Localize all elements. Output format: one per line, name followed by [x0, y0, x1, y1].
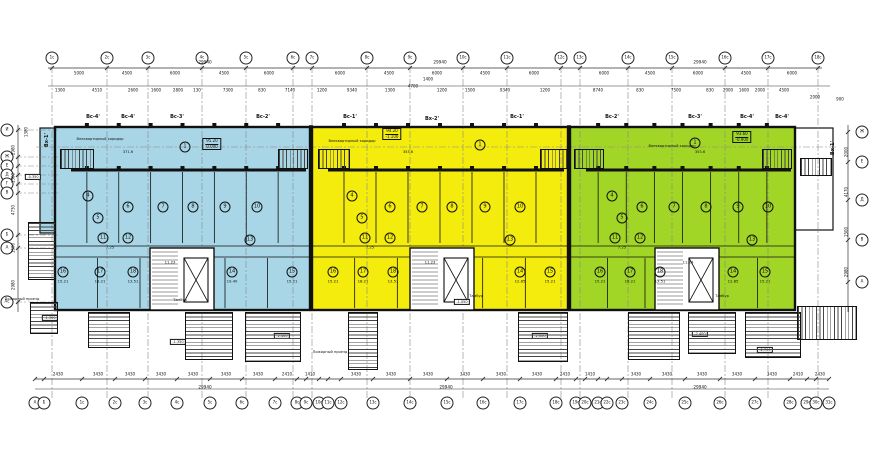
room-area: 15.21: [760, 279, 771, 284]
dimension-text-vertical: 2980: [11, 280, 16, 290]
dimension-text: 6000: [599, 71, 609, 76]
grid-bubble-bottom: 4с: [171, 397, 184, 410]
room-number: 9: [480, 202, 491, 213]
stairs-hatch: [518, 312, 568, 362]
dimension-text: 3430: [496, 372, 506, 377]
dimension-text: 4700: [408, 84, 418, 89]
room-number: 11: [98, 233, 109, 244]
dimension-text: 6000: [264, 71, 274, 76]
room-number: 1: [475, 140, 486, 151]
dimension-text: 2000: [810, 95, 820, 100]
dimension-text: 6000: [335, 71, 345, 76]
text-label: Внеквартирный коридор: [328, 139, 375, 143]
grid-bubble-top: 5с: [240, 52, 253, 65]
grid-bubble-right: Е: [856, 156, 869, 169]
dimension-text: 830: [258, 88, 266, 93]
grid-bubble-bottom: 14с: [404, 397, 417, 410]
grid-bubble-top: 3с: [142, 52, 155, 65]
elevation-box: 94.20-1.100: [382, 128, 401, 140]
grid-bubble-bottom: 16с: [477, 397, 490, 410]
grid-bubble-bottom: 13с: [367, 397, 380, 410]
level-mark: -1.050: [454, 299, 470, 305]
room-number: 14: [515, 267, 526, 278]
level-mark: -0.350: [25, 174, 41, 180]
room-number: 10: [515, 202, 526, 213]
elevation-box: 95.200.000: [202, 138, 221, 150]
room-number: 15: [545, 267, 556, 278]
entry-mark: Вс-3': [688, 114, 702, 120]
room-number: 10: [252, 202, 263, 213]
dimension-text-vertical: 1380: [24, 127, 29, 137]
text-label: Тамбур: [173, 298, 187, 302]
entry-mark: Вх-1': [830, 141, 836, 155]
entry-mark: Вс-3': [170, 114, 184, 120]
grid-bubble-bottom: 27с: [749, 397, 762, 410]
dimension-total: 29940: [439, 385, 452, 390]
dimension-text: 7500: [671, 88, 681, 93]
room-area: 15.21: [595, 279, 606, 284]
dimension-text: 7300: [223, 88, 233, 93]
grid-bubble-top: 8с: [361, 52, 374, 65]
elevation-bottom: 0.000: [205, 145, 218, 150]
level-mark: -1.350: [170, 339, 186, 345]
text-label: Пожарный проезд: [5, 297, 40, 301]
dimension-text: 6000: [529, 71, 539, 76]
room-area: 13.51: [128, 279, 139, 284]
dimension-text: 3430: [125, 372, 135, 377]
entry-mark: Вс-4': [740, 114, 754, 120]
grid-bubble-left: И: [1, 124, 14, 137]
room-area: 7.25: [106, 245, 114, 250]
room-area: 11.23: [683, 260, 694, 265]
stairs-hatch: [30, 302, 58, 334]
dimension-text: 1400: [423, 77, 433, 82]
entry-mark: Вх-1': [44, 133, 50, 147]
room-number: 4: [607, 191, 618, 202]
dimension-text: 3430: [253, 372, 263, 377]
dimension-text: 4500: [219, 71, 229, 76]
grid-bubble-top: 9с: [404, 52, 417, 65]
room-number: 4: [347, 191, 358, 202]
stairs-hatch: [688, 312, 736, 354]
stairs-hatch: [185, 312, 233, 360]
dimension-text: 7140: [285, 88, 295, 93]
grid-bubble-bottom: 1с: [76, 397, 89, 410]
dimension-total: 29940: [693, 385, 706, 390]
grid-bubble-bottom: 7с: [269, 397, 282, 410]
grid-bubble-right: Д: [856, 194, 869, 207]
grid-bubble-bottom: 26с: [714, 397, 727, 410]
grid-bubble-bottom: 30с: [810, 397, 823, 410]
dimension-text: 2600: [128, 88, 138, 93]
grid-bubble-bottom: 28с: [784, 397, 797, 410]
dimension-text: 3430: [156, 372, 166, 377]
stairs-hatch: [540, 149, 568, 169]
grid-bubble-bottom: 15с: [441, 397, 454, 410]
dimension-text-vertical: 2000: [844, 147, 849, 157]
entry-mark: Вс-4': [121, 114, 135, 120]
grid-bubble-left: Б: [1, 229, 14, 242]
dimension-text: 1410: [585, 372, 595, 377]
room-number: 6: [385, 202, 396, 213]
grid-bubble-left: В: [1, 187, 14, 200]
room-number: 5: [357, 213, 368, 224]
entry-mark: Вс-2': [605, 114, 619, 120]
room-number: 11: [360, 233, 371, 244]
grid-bubble-bottom: 25с: [679, 397, 692, 410]
grid-bubble-top: 13с: [574, 52, 587, 65]
dimension-text: 1200: [317, 88, 327, 93]
dimension-text: 3430: [532, 372, 542, 377]
entry-mark: Вс-1': [343, 114, 357, 120]
room-area: 12.85: [515, 279, 526, 284]
room-number: 6: [123, 202, 134, 213]
room-area: 18.21: [625, 279, 636, 284]
grid-bubble-bottom: 23с: [616, 397, 629, 410]
room-number: 16: [595, 267, 606, 278]
stairs-hatch: [88, 312, 130, 348]
text-label: Пожарный проезд: [313, 350, 348, 354]
room-area: 15.21: [328, 279, 339, 284]
dimension-total: 29940: [433, 60, 446, 65]
room-number: 8: [701, 202, 712, 213]
dimension-text: 1600: [151, 88, 161, 93]
text-label: 353.6: [403, 150, 413, 154]
grid-bubble-bottom: 12с: [335, 397, 348, 410]
dimension-text: 4500: [122, 71, 132, 76]
grid-bubble-bottom: 9с: [300, 397, 313, 410]
dimension-text: 2410: [793, 372, 803, 377]
room-number: 1: [690, 138, 701, 149]
room-area: 12.85: [728, 279, 739, 284]
grid-bubble-bottom: 17с: [514, 397, 527, 410]
dimension-text: 3430: [188, 372, 198, 377]
dimension-text-vertical: 4730: [11, 205, 16, 215]
room-area: 13.51: [388, 279, 399, 284]
dimension-text: 1200: [540, 88, 550, 93]
room-number: 5: [617, 213, 628, 224]
dimension-text: 3430: [93, 372, 103, 377]
room-number: 12: [635, 233, 646, 244]
grid-bubble-bottom: 3с: [139, 397, 152, 410]
room-number: 11: [610, 233, 621, 244]
room-number: 17: [95, 267, 106, 278]
dimension-text: 4500: [384, 71, 394, 76]
room-area: 18.21: [95, 279, 106, 284]
dimension-text: 3430: [221, 372, 231, 377]
grid-bubble-top: 10с: [457, 52, 470, 65]
dimension-text: 130: [193, 88, 201, 93]
dimension-text-vertical: 2980: [11, 145, 16, 155]
dimension-text: 3430: [386, 372, 396, 377]
dimension-text: 3430: [697, 372, 707, 377]
grid-bubble-top: 1с: [46, 52, 59, 65]
grid-bubble-top: 14с: [622, 52, 635, 65]
entry-mark: Вс-2': [256, 114, 270, 120]
room-number: 8: [447, 202, 458, 213]
room-area: 15.21: [287, 279, 298, 284]
room-area: 11.23: [425, 260, 436, 265]
text-label: Внеквартирный коридор: [76, 137, 123, 141]
grid-bubble-bottom: 18с: [550, 397, 563, 410]
grid-bubble-bottom: 11с: [322, 397, 335, 410]
room-area: 7.25: [366, 245, 374, 250]
grid-bubble-right: А: [856, 276, 869, 289]
grid-bubble-top: 2с: [101, 52, 114, 65]
dimension-total: 29940: [693, 60, 706, 65]
grid-bubble-bottom: 31с: [823, 397, 836, 410]
plan-annotations: 1с2с3с4с5с6с7с8с9с10с11с12с13с14с15с16с1…: [0, 0, 871, 457]
room-number: 14: [227, 267, 238, 278]
dimension-text-vertical: 1500: [844, 227, 849, 237]
room-area: 15.21: [545, 279, 556, 284]
room-number: 4: [83, 191, 94, 202]
dimension-text-vertical: 1500: [11, 243, 16, 253]
room-number: 12: [123, 233, 134, 244]
room-number: 13: [505, 235, 516, 246]
dimension-text: 4500: [779, 88, 789, 93]
elevation-bottom: -0.900: [735, 138, 748, 143]
dimension-text: 1300: [385, 88, 395, 93]
dimension-text: 4500: [741, 71, 751, 76]
room-number: 7: [417, 202, 428, 213]
dimension-text: 900: [836, 97, 844, 102]
dimension-text-vertical: 4170: [844, 187, 849, 197]
room-number: 17: [625, 267, 636, 278]
room-area: 19.40: [227, 279, 238, 284]
room-number: 15: [760, 267, 771, 278]
room-number: 13: [747, 235, 758, 246]
dimension-text: 2800: [173, 88, 183, 93]
dimension-text: 8740: [593, 88, 603, 93]
room-area: 18.21: [358, 279, 369, 284]
dimension-text-vertical: 1500: [11, 173, 16, 183]
grid-bubble-right: В: [856, 234, 869, 247]
stairs-hatch: [628, 312, 680, 360]
dimension-total: 29940: [198, 60, 211, 65]
dimension-text: 2430: [815, 372, 825, 377]
room-area: 11.23: [165, 260, 176, 265]
grid-bubble-top: 12с: [555, 52, 568, 65]
dimension-text: 5000: [74, 71, 84, 76]
room-number: 16: [328, 267, 339, 278]
room-number: 12: [385, 233, 396, 244]
room-number: 9: [220, 202, 231, 213]
stairs-hatch: [797, 306, 857, 340]
stairs-hatch: [574, 149, 604, 169]
entry-mark: Вс-1': [510, 114, 524, 120]
dimension-text: 4500: [645, 71, 655, 76]
dimension-text: 3430: [732, 372, 742, 377]
room-number: 8: [188, 202, 199, 213]
text-label: Тамбур: [715, 294, 729, 298]
grid-bubble-right: Ж: [856, 126, 869, 139]
dimension-text: 3430: [767, 372, 777, 377]
elevation-box: 93.60-0.900: [732, 131, 751, 143]
dimension-text: 1500: [465, 88, 475, 93]
room-number: 1: [180, 142, 191, 153]
dimension-text-vertical: 2980: [844, 267, 849, 277]
room-number: 18: [128, 267, 139, 278]
room-number: 6: [637, 202, 648, 213]
entry-mark: Вс-4': [775, 114, 789, 120]
dimension-text: 6000: [693, 71, 703, 76]
dimension-text: 4500: [480, 71, 490, 76]
room-area: 13.51: [655, 279, 666, 284]
grid-bubble-top: 7с: [306, 52, 319, 65]
dimension-text: 6000: [170, 71, 180, 76]
stairs-hatch: [278, 149, 308, 169]
dimension-text: 3430: [662, 372, 672, 377]
grid-bubble-top: 17с: [762, 52, 775, 65]
stairs-hatch: [60, 149, 94, 169]
room-number: 13: [245, 235, 256, 246]
dimension-text: 1300: [55, 88, 65, 93]
dimension-text: 1600: [739, 88, 749, 93]
grid-bubble-top: 18с: [812, 52, 825, 65]
room-number: 18: [388, 267, 399, 278]
dimension-text: 9340: [500, 88, 510, 93]
dimension-text: 3430: [631, 372, 641, 377]
dimension-text: 2410: [560, 372, 570, 377]
stairs-hatch: [800, 158, 832, 176]
grid-bubble-top: 6с: [287, 52, 300, 65]
stairs-hatch: [348, 312, 378, 370]
dimension-text: 9340: [347, 88, 357, 93]
room-number: 9: [733, 202, 744, 213]
room-number: 10: [763, 202, 774, 213]
entry-mark: Вх-2': [425, 116, 439, 122]
grid-bubble-bottom: 20с: [579, 397, 592, 410]
dimension-text: 1410: [305, 372, 315, 377]
grid-bubble-bottom: 2с: [109, 397, 122, 410]
dimension-text: 6000: [787, 71, 797, 76]
dimension-text: 6000: [432, 71, 442, 76]
dimension-text: 830: [636, 88, 644, 93]
room-number: 14: [728, 267, 739, 278]
elevation-bottom: -1.100: [385, 135, 398, 140]
room-number: 18: [655, 267, 666, 278]
room-number: 5: [93, 213, 104, 224]
stairs-hatch: [762, 149, 792, 169]
dimension-text: 2430: [53, 372, 63, 377]
grid-bubble-bottom: 5с: [204, 397, 217, 410]
stairs-hatch: [318, 149, 350, 169]
stairs-hatch: [745, 312, 801, 358]
stairs-hatch: [28, 222, 56, 280]
dimension-text: 2000: [755, 88, 765, 93]
room-number: 15: [287, 267, 298, 278]
dimension-text: 3430: [423, 372, 433, 377]
dimension-total: 29940: [198, 385, 211, 390]
text-label: 371.6: [123, 150, 133, 154]
dimension-text: 2000: [723, 88, 733, 93]
dimension-text: 4510: [92, 88, 102, 93]
dimension-text: 3430: [351, 372, 361, 377]
grid-bubble-bottom: 24с: [644, 397, 657, 410]
room-number: 17: [358, 267, 369, 278]
grid-bubble-top: 16с: [719, 52, 732, 65]
text-label: Внеквартирный коридор: [648, 144, 695, 148]
text-label: Тамбур: [469, 294, 483, 298]
room-number: 7: [158, 202, 169, 213]
grid-bubble-top: 15с: [666, 52, 679, 65]
floor-plan-drawing: 1с2с3с4с5с6с7с8с9с10с11с12с13с14с15с16с1…: [0, 0, 871, 457]
text-label: 353.6: [695, 150, 705, 154]
grid-bubble-bottom: Б: [38, 397, 51, 410]
room-area: 7.25: [618, 245, 626, 250]
grid-bubble-bottom: 6с: [236, 397, 249, 410]
room-area: 15.21: [58, 279, 69, 284]
stairs-hatch: [245, 312, 301, 362]
grid-bubble-bottom: 22с: [601, 397, 614, 410]
dimension-text: 830: [706, 88, 714, 93]
grid-bubble-top: 11с: [501, 52, 514, 65]
dimension-text: 2410: [282, 372, 292, 377]
room-number: 7: [669, 202, 680, 213]
dimension-text: 3430: [460, 372, 470, 377]
dimension-text: 1200: [437, 88, 447, 93]
entry-mark: Вс-4': [86, 114, 100, 120]
room-number: 16: [58, 267, 69, 278]
